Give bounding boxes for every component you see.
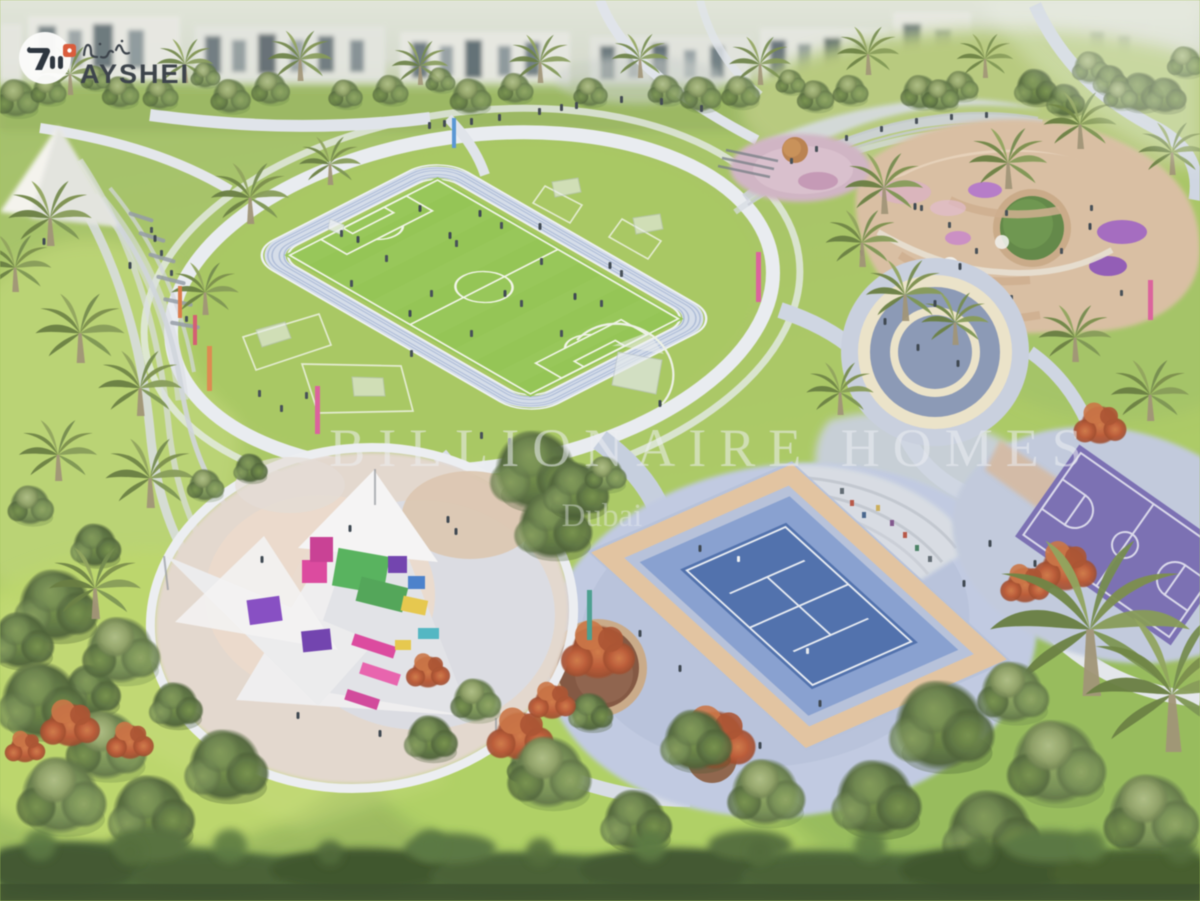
svg-text:BILLIONAIRE HOMES: BILLIONAIRE HOMES [329,418,1094,478]
svg-text:AYSHEI: AYSHEI [80,59,190,89]
svg-text:Dubai: Dubai [562,498,643,534]
